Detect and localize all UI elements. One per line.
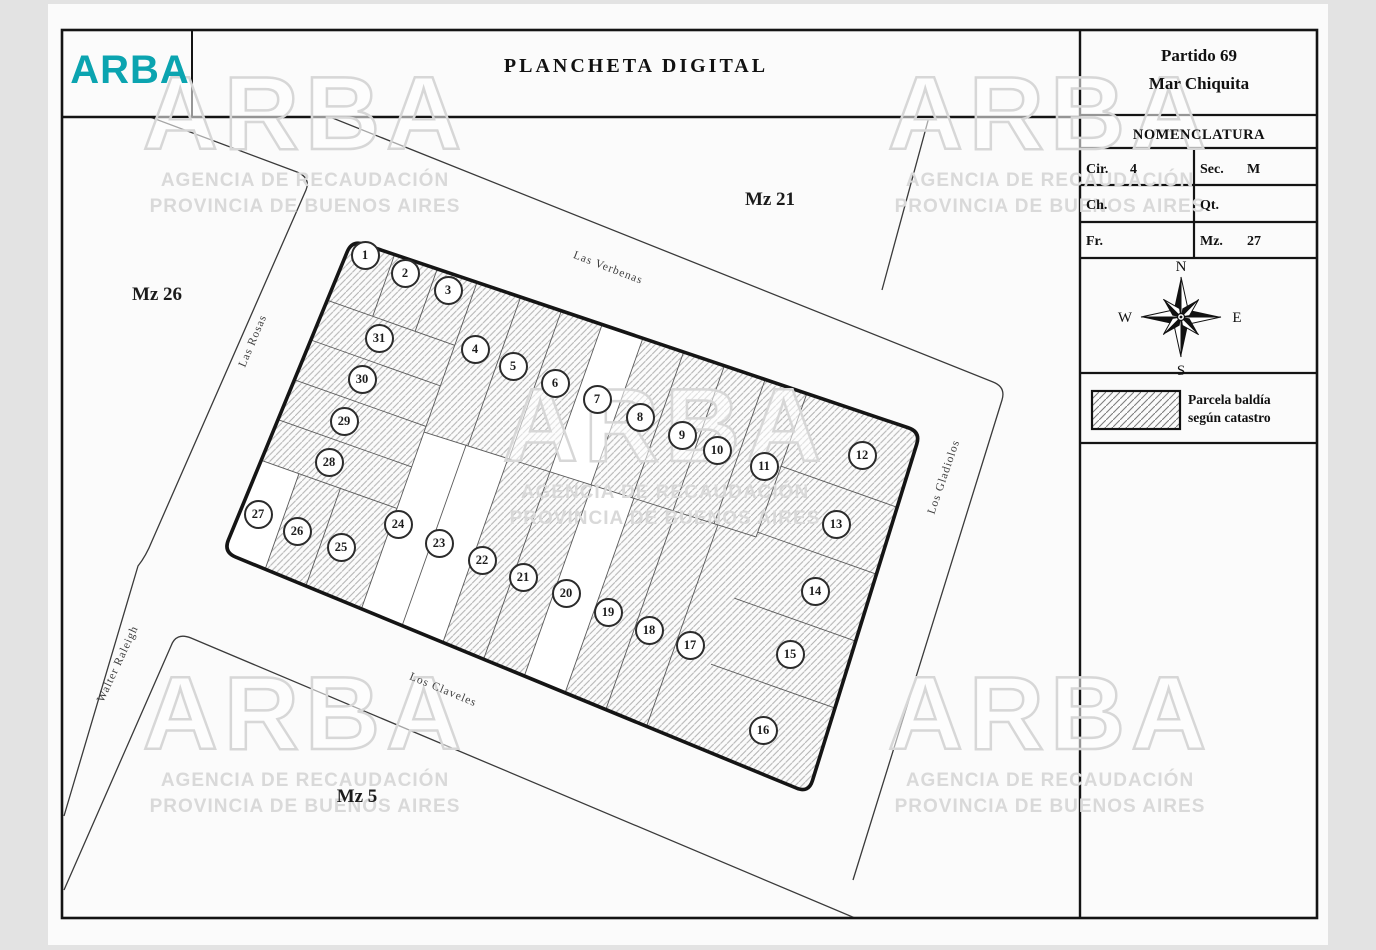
field-sec-value: M <box>1247 162 1260 178</box>
plancheta-page: ARBA AGENCIA DE RECAUDACIÓN PROVINCIA DE… <box>0 0 1376 950</box>
legend-hatch-swatch <box>1092 391 1180 429</box>
compass-s-label: S <box>1177 363 1185 379</box>
compass-n-label: N <box>1176 259 1187 275</box>
compass-rose: N S W E <box>1118 259 1242 379</box>
compass-w-label: W <box>1118 310 1133 326</box>
nomenclatura-title: NOMENCLATURA <box>1082 127 1316 144</box>
field-sec-label: Sec. <box>1200 162 1224 178</box>
field-cir-label: Cir. <box>1086 162 1108 178</box>
mz-21-label: Mz 21 <box>745 189 795 211</box>
field-mz-value: 27 <box>1247 234 1261 250</box>
page-title: PLANCHETA DIGITAL <box>192 55 1080 78</box>
field-fr-label: Fr. <box>1086 234 1103 250</box>
legend-text-line1: Parcela baldía <box>1188 392 1318 408</box>
partido-number: Partido 69 <box>1082 46 1316 66</box>
street-line-mz21-east <box>882 117 929 290</box>
field-qt-label: Qt. <box>1200 198 1219 214</box>
mz-5-label: Mz 5 <box>337 786 378 808</box>
mz-26-label: Mz 26 <box>132 284 182 306</box>
field-ch-label: Ch. <box>1086 198 1107 214</box>
compass-e-label: E <box>1232 310 1241 326</box>
arba-logo: ARBA <box>70 48 190 93</box>
legend-text-line2: según catastro <box>1188 410 1318 426</box>
block-mz27 <box>213 226 934 792</box>
partido-name: Mar Chiquita <box>1082 74 1316 94</box>
field-cir-value: 4 <box>1130 162 1137 178</box>
field-mz-label: Mz. <box>1200 234 1223 250</box>
